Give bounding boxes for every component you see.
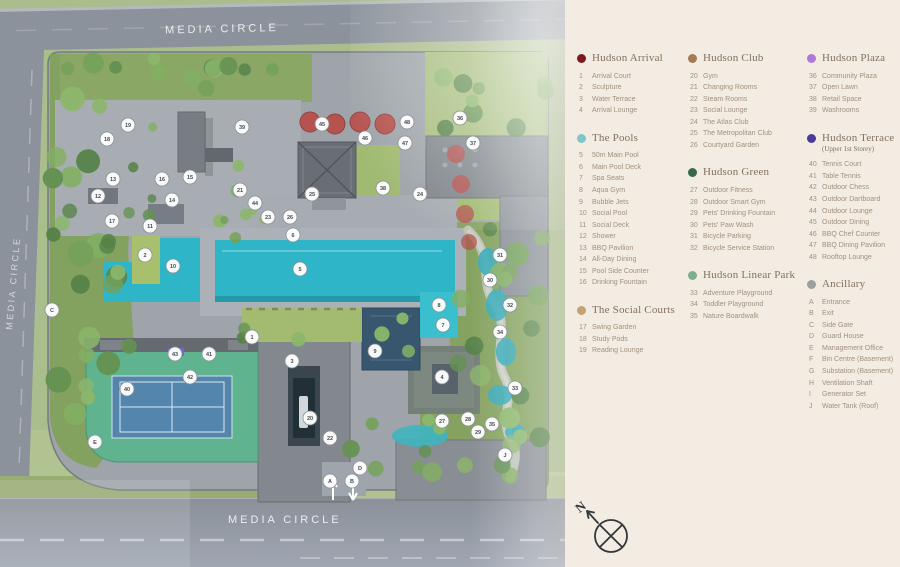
map-marker: 32 (503, 298, 517, 312)
svg-text:13: 13 (110, 177, 116, 183)
legend-item-number: 21 (690, 84, 703, 91)
legend-item-number: 9 (579, 199, 592, 206)
svg-text:6: 6 (291, 233, 294, 239)
svg-text:1: 1 (250, 335, 253, 341)
legend-item-label: Tennis Court (822, 161, 900, 168)
category-dot (807, 280, 816, 289)
legend-item-number: 15 (579, 268, 592, 275)
map-marker: A (323, 474, 337, 488)
legend-item-label: Arrival Court (592, 73, 683, 80)
legend-item-number: 11 (579, 222, 592, 229)
legend-item-label: Outdoor Fitness (703, 187, 802, 194)
legend-item-label: BBQ Chef Counter (822, 231, 900, 238)
map-marker: 48 (400, 115, 414, 129)
map-marker: 38 (376, 181, 390, 195)
legend-item: 7Spa Seats (579, 175, 683, 182)
legend-item: 42Outdoor Chess (809, 184, 900, 191)
legend-item-number: 37 (809, 84, 822, 91)
legend-item-number: 6 (579, 164, 592, 171)
legend-item: BExit (809, 310, 900, 317)
svg-text:17: 17 (109, 219, 115, 225)
legend-item-number: 5 (579, 152, 592, 159)
svg-text:37: 37 (470, 141, 476, 147)
legend-item-number: 41 (809, 173, 822, 180)
legend-section: Hudson Green27Outdoor Fitness28Outdoor S… (688, 166, 802, 256)
map-marker: 28 (461, 412, 475, 426)
legend-item-number: 35 (690, 313, 703, 320)
svg-text:31: 31 (497, 253, 503, 259)
legend-item: 31Bicycle Parking (690, 233, 802, 240)
map-marker: 36 (453, 111, 467, 125)
map-marker: 11 (143, 219, 157, 233)
legend-item: 45Outdoor Dining (809, 219, 900, 226)
category-title: Hudson Arrival (592, 52, 663, 65)
svg-text:E: E (93, 440, 97, 446)
legend-item-label: Reading Lounge (592, 347, 683, 354)
category-dot (688, 54, 697, 63)
legend-item-label: Retail Space (822, 96, 900, 103)
legend-item-label: Bin Centre (Basement) (822, 356, 900, 363)
map-marker: 43 (168, 347, 182, 361)
map-marker: 14 (165, 193, 179, 207)
legend-item-label: Generator Set (822, 391, 900, 398)
svg-text:15: 15 (187, 175, 193, 181)
legend-item: 12Shower (579, 233, 683, 240)
legend-item-label: Main Pool Deck (592, 164, 683, 171)
map-marker: 40 (120, 382, 134, 396)
legend-item-label: Pets' Drinking Fountain (703, 210, 802, 217)
category-title: Hudson Green (703, 166, 769, 179)
category-dot (807, 54, 816, 63)
svg-text:28: 28 (465, 417, 471, 423)
legend-item-number: 25 (690, 130, 703, 137)
legend-item: 13BBQ Pavilion (579, 245, 683, 252)
legend-item-number: 43 (809, 196, 822, 203)
legend-item: 3Water Terrace (579, 96, 683, 103)
svg-text:20: 20 (307, 416, 313, 422)
legend-item: 29Pets' Drinking Fountain (690, 210, 802, 217)
legend-section: Hudson Linear Park33Adventure Playground… (688, 269, 802, 324)
svg-text:9: 9 (373, 349, 376, 355)
legend-item-number: 2 (579, 84, 592, 91)
legend-item: 24The Atlas Club (690, 119, 802, 126)
map-marker: 21 (233, 183, 247, 197)
svg-text:B: B (350, 479, 354, 485)
site-plan-svg: MEDIA CIRCLE MEDIA CIRCLE MEDIA CIRCLE (0, 0, 565, 567)
legend-item-label: Outdoor Dartboard (822, 196, 900, 203)
legend-item-label: Swing Garden (592, 324, 683, 331)
legend-section: The Pools550m Main Pool6Main Pool Deck7S… (577, 132, 683, 291)
legend-item: 35Nature Boardwalk (690, 313, 802, 320)
legend-item-label: Arrival Lounge (592, 107, 683, 114)
legend-item-number: I (809, 391, 822, 398)
legend-item: 34Toddler Playground (690, 301, 802, 308)
legend-item-label: Community Plaza (822, 73, 900, 80)
legend-item-label: Outdoor Chess (822, 184, 900, 191)
map-marker: 25 (305, 187, 319, 201)
legend-item-label: The Atlas Club (703, 119, 802, 126)
svg-text:40: 40 (124, 387, 130, 393)
svg-text:A: A (328, 479, 332, 485)
category-title: Hudson Terrace (822, 132, 894, 145)
site-plan-map: MEDIA CIRCLE MEDIA CIRCLE MEDIA CIRCLE (0, 0, 565, 567)
map-marker: 27 (435, 414, 449, 428)
legend-item: 40Tennis Court (809, 161, 900, 168)
legend-item-number: 12 (579, 233, 592, 240)
legend-item-number: 3 (579, 96, 592, 103)
map-marker: 2 (138, 248, 152, 262)
legend-item-number: 32 (690, 245, 703, 252)
legend-item: EManagement Office (809, 345, 900, 352)
map-marker: 13 (106, 172, 120, 186)
legend-column: Hudson Club20Gym21Changing Rooms22Steam … (688, 52, 802, 427)
legend-item-label: Bicycle Parking (703, 233, 802, 240)
legend-item-number: 17 (579, 324, 592, 331)
legend-section: Hudson Arrival1Arrival Court2Sculpture3W… (577, 52, 683, 119)
legend-item: 37Open Lawn (809, 84, 900, 91)
legend-item: 23Social Lounge (690, 107, 802, 114)
map-marker: 6 (286, 228, 300, 242)
legend-item: 8Aqua Gym (579, 187, 683, 194)
legend-item: FBin Centre (Basement) (809, 356, 900, 363)
map-marker: 9 (368, 344, 382, 358)
legend-item-number: 29 (690, 210, 703, 217)
svg-text:45: 45 (319, 122, 325, 128)
legend-item-number: 31 (690, 233, 703, 240)
legend-item: HVentilation Shaft (809, 380, 900, 387)
legend-item-label: Table Tennis (822, 173, 900, 180)
legend-item-number: 46 (809, 231, 822, 238)
category-dot (577, 134, 586, 143)
legend-item: 43Outdoor Dartboard (809, 196, 900, 203)
legend-item-number: 47 (809, 242, 822, 249)
legend-item-number: 13 (579, 245, 592, 252)
svg-text:42: 42 (187, 375, 193, 381)
legend-section: AncillaryAEntranceBExitCSide GateDGuard … (807, 278, 900, 414)
svg-text:24: 24 (417, 192, 424, 198)
legend-item: 44Outdoor Lounge (809, 208, 900, 215)
legend-item-number: E (809, 345, 822, 352)
legend-item: 9Bubble Jets (579, 199, 683, 206)
svg-text:3: 3 (290, 359, 293, 365)
svg-text:46: 46 (362, 136, 368, 142)
legend-item-number: 45 (809, 219, 822, 226)
legend-section: The Social Courts17Swing Garden18Study P… (577, 304, 683, 359)
legend-item: 26Courtyard Garden (690, 142, 802, 149)
map-marker: 45 (315, 117, 329, 131)
legend-item-number: 8 (579, 187, 592, 194)
site-plan-page: MEDIA CIRCLE MEDIA CIRCLE MEDIA CIRCLE (0, 0, 900, 567)
category-title: Ancillary (822, 278, 865, 291)
legend-item: 28Outdoor Smart Gym (690, 199, 802, 206)
category-dot (688, 168, 697, 177)
legend-section: Hudson Club20Gym21Changing Rooms22Steam … (688, 52, 802, 153)
legend-item: 36Community Plaza (809, 73, 900, 80)
map-marker: 30 (483, 273, 497, 287)
map-marker: 3 (285, 354, 299, 368)
category-dot (688, 271, 697, 280)
legend-item-label: Steam Rooms (703, 96, 802, 103)
legend-item-number: 39 (809, 107, 822, 114)
map-marker: 7 (436, 318, 450, 332)
legend-item-number: 7 (579, 175, 592, 182)
svg-text:19: 19 (125, 123, 131, 129)
legend-item-label: BBQ Pavilion (592, 245, 683, 252)
map-marker: 47 (398, 136, 412, 150)
legend-item-number: 48 (809, 254, 822, 261)
svg-text:39: 39 (239, 125, 245, 131)
category-title: The Pools (592, 132, 638, 145)
map-marker: B (345, 474, 359, 488)
svg-text:26: 26 (287, 215, 293, 221)
category-dot (577, 306, 586, 315)
svg-text:D: D (358, 466, 362, 472)
legend-item-label: Sculpture (592, 84, 683, 91)
legend-item-number: A (809, 299, 822, 306)
legend-item-label: Adventure Playground (703, 290, 802, 297)
map-marker: 29 (471, 425, 485, 439)
svg-text:J: J (503, 453, 506, 459)
legend-item: 33Adventure Playground (690, 290, 802, 297)
map-marker: 24 (413, 187, 427, 201)
legend-item-label: Social Pool (592, 210, 683, 217)
legend-item-label: Water Tank (Roof) (822, 403, 900, 410)
legend-item-number: C (809, 322, 822, 329)
legend-item: 20Gym (690, 73, 802, 80)
legend-item-number: 30 (690, 222, 703, 229)
legend-item-label: Aqua Gym (592, 187, 683, 194)
legend-item: CSide Gate (809, 322, 900, 329)
legend-item-label: Guard House (822, 333, 900, 340)
map-marker: 41 (202, 347, 216, 361)
legend-item: 46BBQ Chef Counter (809, 231, 900, 238)
svg-text:43: 43 (172, 352, 178, 358)
category-title: The Social Courts (592, 304, 675, 317)
map-marker: 1 (245, 330, 259, 344)
legend-item-label: Pets' Paw Wash (703, 222, 802, 229)
legend-item-number: G (809, 368, 822, 375)
legend-item: 39Washrooms (809, 107, 900, 114)
map-marker: 19 (121, 118, 135, 132)
legend-item: 30Pets' Paw Wash (690, 222, 802, 229)
svg-text:30: 30 (487, 278, 493, 284)
svg-text:29: 29 (475, 430, 481, 436)
category-title: Hudson Club (703, 52, 764, 65)
legend-item-number: 26 (690, 142, 703, 149)
map-marker: 37 (466, 136, 480, 150)
legend-item-label: Outdoor Smart Gym (703, 199, 802, 206)
compass-cross (600, 525, 623, 548)
svg-text:18: 18 (104, 137, 110, 143)
map-marker: 31 (493, 248, 507, 262)
legend-item-label: Water Terrace (592, 96, 683, 103)
map-marker: 39 (235, 120, 249, 134)
legend-item-label: Bubble Jets (592, 199, 683, 206)
legend-item: 2Sculpture (579, 84, 683, 91)
legend-item: 15Pool Side Counter (579, 268, 683, 275)
map-marker: 23 (261, 210, 275, 224)
svg-text:5: 5 (298, 267, 301, 273)
legend-item: 18Study Pods (579, 336, 683, 343)
map-marker: C (45, 303, 59, 317)
legend-item: DGuard House (809, 333, 900, 340)
map-marker: 44 (248, 196, 262, 210)
svg-text:41: 41 (206, 352, 212, 358)
svg-text:36: 36 (457, 116, 463, 122)
legend-item-number: J (809, 403, 822, 410)
svg-text:2: 2 (143, 253, 146, 259)
svg-text:48: 48 (404, 120, 410, 126)
legend-item: 19Reading Lounge (579, 347, 683, 354)
svg-text:35: 35 (489, 422, 495, 428)
legend-item-number: 40 (809, 161, 822, 168)
map-marker: 26 (283, 210, 297, 224)
legend-item-number: 4 (579, 107, 592, 114)
legend-item-number: 19 (579, 347, 592, 354)
map-marker: 34 (493, 325, 507, 339)
map-marker: 46 (358, 131, 372, 145)
category-dot (577, 54, 586, 63)
map-marker: 17 (105, 214, 119, 228)
legend-item-label: Rooftop Lounge (822, 254, 900, 261)
legend-item-number: 16 (579, 279, 592, 286)
legend-item-number: 22 (690, 96, 703, 103)
svg-text:22: 22 (327, 436, 333, 442)
compass: N (573, 496, 649, 566)
legend-item-label: 50m Main Pool (592, 152, 683, 159)
legend-item-label: Bicycle Service Station (703, 245, 802, 252)
svg-text:8: 8 (437, 303, 440, 309)
legend-item-label: Changing Rooms (703, 84, 802, 91)
legend-item-label: Social Lounge (703, 107, 802, 114)
legend-item: 10Social Pool (579, 210, 683, 217)
legend-item: 550m Main Pool (579, 152, 683, 159)
legend-item-label: Side Gate (822, 322, 900, 329)
legend-item-label: Shower (592, 233, 683, 240)
legend-item: 38Retail Space (809, 96, 900, 103)
legend-panel: Hudson Arrival1Arrival Court2Sculpture3W… (565, 0, 900, 567)
legend-item-label: BBQ Dining Pavilion (822, 242, 900, 249)
legend-item-label: Outdoor Lounge (822, 208, 900, 215)
legend-item-label: Toddler Playground (703, 301, 802, 308)
legend-columns: Hudson Arrival1Arrival Court2Sculpture3W… (577, 52, 900, 427)
legend-section: Hudson Terrace(Upper 1st Storey)40Tennis… (807, 132, 900, 265)
legend-item-number: 14 (579, 256, 592, 263)
svg-text:38: 38 (380, 186, 386, 192)
legend-item-number: H (809, 380, 822, 387)
map-marker: 16 (155, 172, 169, 186)
svg-text:23: 23 (265, 215, 271, 221)
legend-item-label: The Metropolitan Club (703, 130, 802, 137)
legend-item: 41Table Tennis (809, 173, 900, 180)
legend-item-label: Management Office (822, 345, 900, 352)
legend-item-number: 36 (809, 73, 822, 80)
legend-column: Hudson Plaza36Community Plaza37Open Lawn… (807, 52, 900, 427)
map-marker: 5 (293, 262, 307, 276)
legend-section: Hudson Plaza36Community Plaza37Open Lawn… (807, 52, 900, 119)
legend-item-label: Entrance (822, 299, 900, 306)
legend-item: 32Bicycle Service Station (690, 245, 802, 252)
legend-item-number: 10 (579, 210, 592, 217)
legend-item: 6Main Pool Deck (579, 164, 683, 171)
legend-item-number: 24 (690, 119, 703, 126)
map-marker: 18 (100, 132, 114, 146)
svg-text:C: C (50, 308, 54, 314)
legend-item-number: 42 (809, 184, 822, 191)
legend-item-number: 1 (579, 73, 592, 80)
legend-item-number: F (809, 356, 822, 363)
legend-item: 14All-Day Dining (579, 256, 683, 263)
map-marker: 15 (183, 170, 197, 184)
map-marker: 4 (435, 370, 449, 384)
legend-item-number: 27 (690, 187, 703, 194)
legend-item-label: Social Deck (592, 222, 683, 229)
svg-text:33: 33 (512, 386, 518, 392)
svg-text:10: 10 (170, 264, 176, 270)
map-marker: J (498, 448, 512, 462)
legend-item: JWater Tank (Roof) (809, 403, 900, 410)
svg-text:16: 16 (159, 177, 165, 183)
legend-item-label: Ventilation Shaft (822, 380, 900, 387)
legend-item: 4Arrival Lounge (579, 107, 683, 114)
map-marker: 33 (508, 381, 522, 395)
legend-item: GSubstation (Basement) (809, 368, 900, 375)
legend-item-label: Spa Seats (592, 175, 683, 182)
map-marker: 42 (183, 370, 197, 384)
legend-item-label: Open Lawn (822, 84, 900, 91)
legend-item-number: 20 (690, 73, 703, 80)
legend-item-number: 18 (579, 336, 592, 343)
map-marker: 20 (303, 411, 317, 425)
category-title: Hudson Plaza (822, 52, 885, 65)
map-marker: 12 (91, 189, 105, 203)
svg-text:25: 25 (309, 192, 315, 198)
legend-item: 47BBQ Dining Pavilion (809, 242, 900, 249)
svg-text:21: 21 (237, 188, 243, 194)
svg-text:11: 11 (147, 224, 153, 230)
map-marker: 35 (485, 417, 499, 431)
legend-item: 1Arrival Court (579, 73, 683, 80)
map-marker: 10 (166, 259, 180, 273)
legend-item-label: Drinking Fountain (592, 279, 683, 286)
legend-item: 11Social Deck (579, 222, 683, 229)
svg-text:34: 34 (497, 330, 504, 336)
legend-item-label: Nature Boardwalk (703, 313, 802, 320)
legend-item: 25The Metropolitan Club (690, 130, 802, 137)
legend-item: 21Changing Rooms (690, 84, 802, 91)
map-marker: 8 (432, 298, 446, 312)
map-marker: 22 (323, 431, 337, 445)
legend-item: 17Swing Garden (579, 324, 683, 331)
legend-item-label: Study Pods (592, 336, 683, 343)
legend-item-number: 44 (809, 208, 822, 215)
legend-item: 27Outdoor Fitness (690, 187, 802, 194)
svg-text:14: 14 (169, 198, 176, 204)
svg-text:7: 7 (441, 323, 444, 329)
svg-text:32: 32 (507, 303, 513, 309)
legend-item-number: 38 (809, 96, 822, 103)
legend-column: Hudson Arrival1Arrival Court2Sculpture3W… (577, 52, 683, 427)
legend-item: IGenerator Set (809, 391, 900, 398)
legend-item-number: 28 (690, 199, 703, 206)
legend-item-number: 33 (690, 290, 703, 297)
legend-item-label: Outdoor Dining (822, 219, 900, 226)
svg-text:27: 27 (439, 419, 445, 425)
category-title: Hudson Linear Park (703, 269, 795, 282)
legend-item-label: Exit (822, 310, 900, 317)
legend-item-number: B (809, 310, 822, 317)
legend-item: AEntrance (809, 299, 900, 306)
